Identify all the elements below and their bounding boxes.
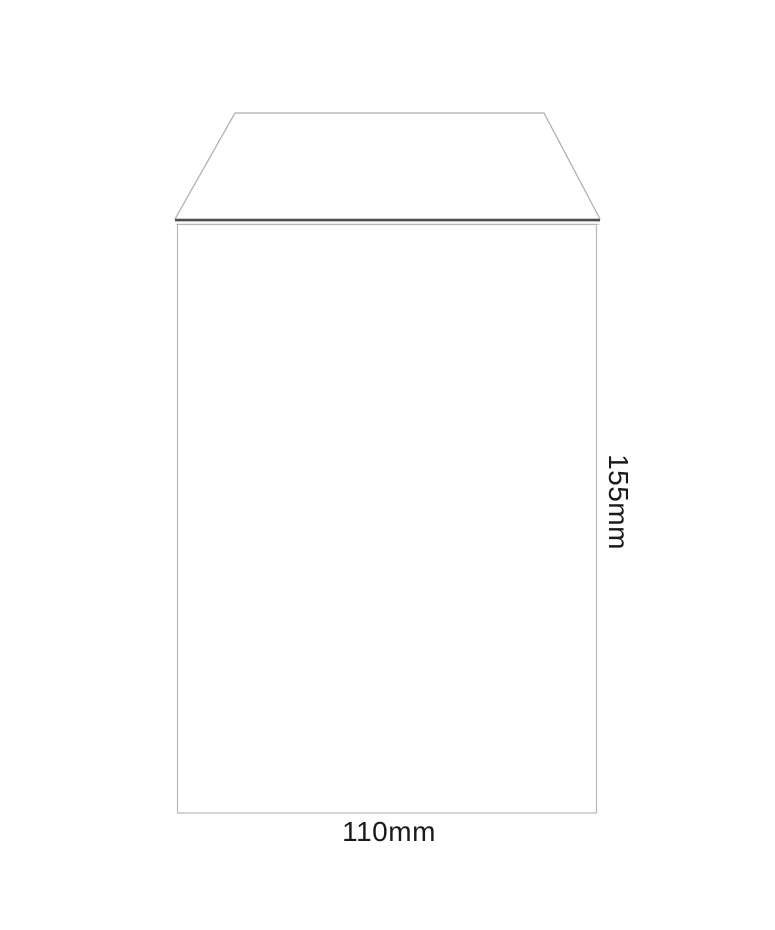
envelope-body — [178, 225, 597, 814]
height-dimension-label: 155mm — [602, 454, 634, 550]
envelope-diagram: 155mm 110mm — [0, 0, 775, 930]
envelope-outline-drawing — [0, 0, 775, 930]
width-dimension-label: 110mm — [342, 816, 436, 848]
envelope-flap — [175, 113, 600, 219]
